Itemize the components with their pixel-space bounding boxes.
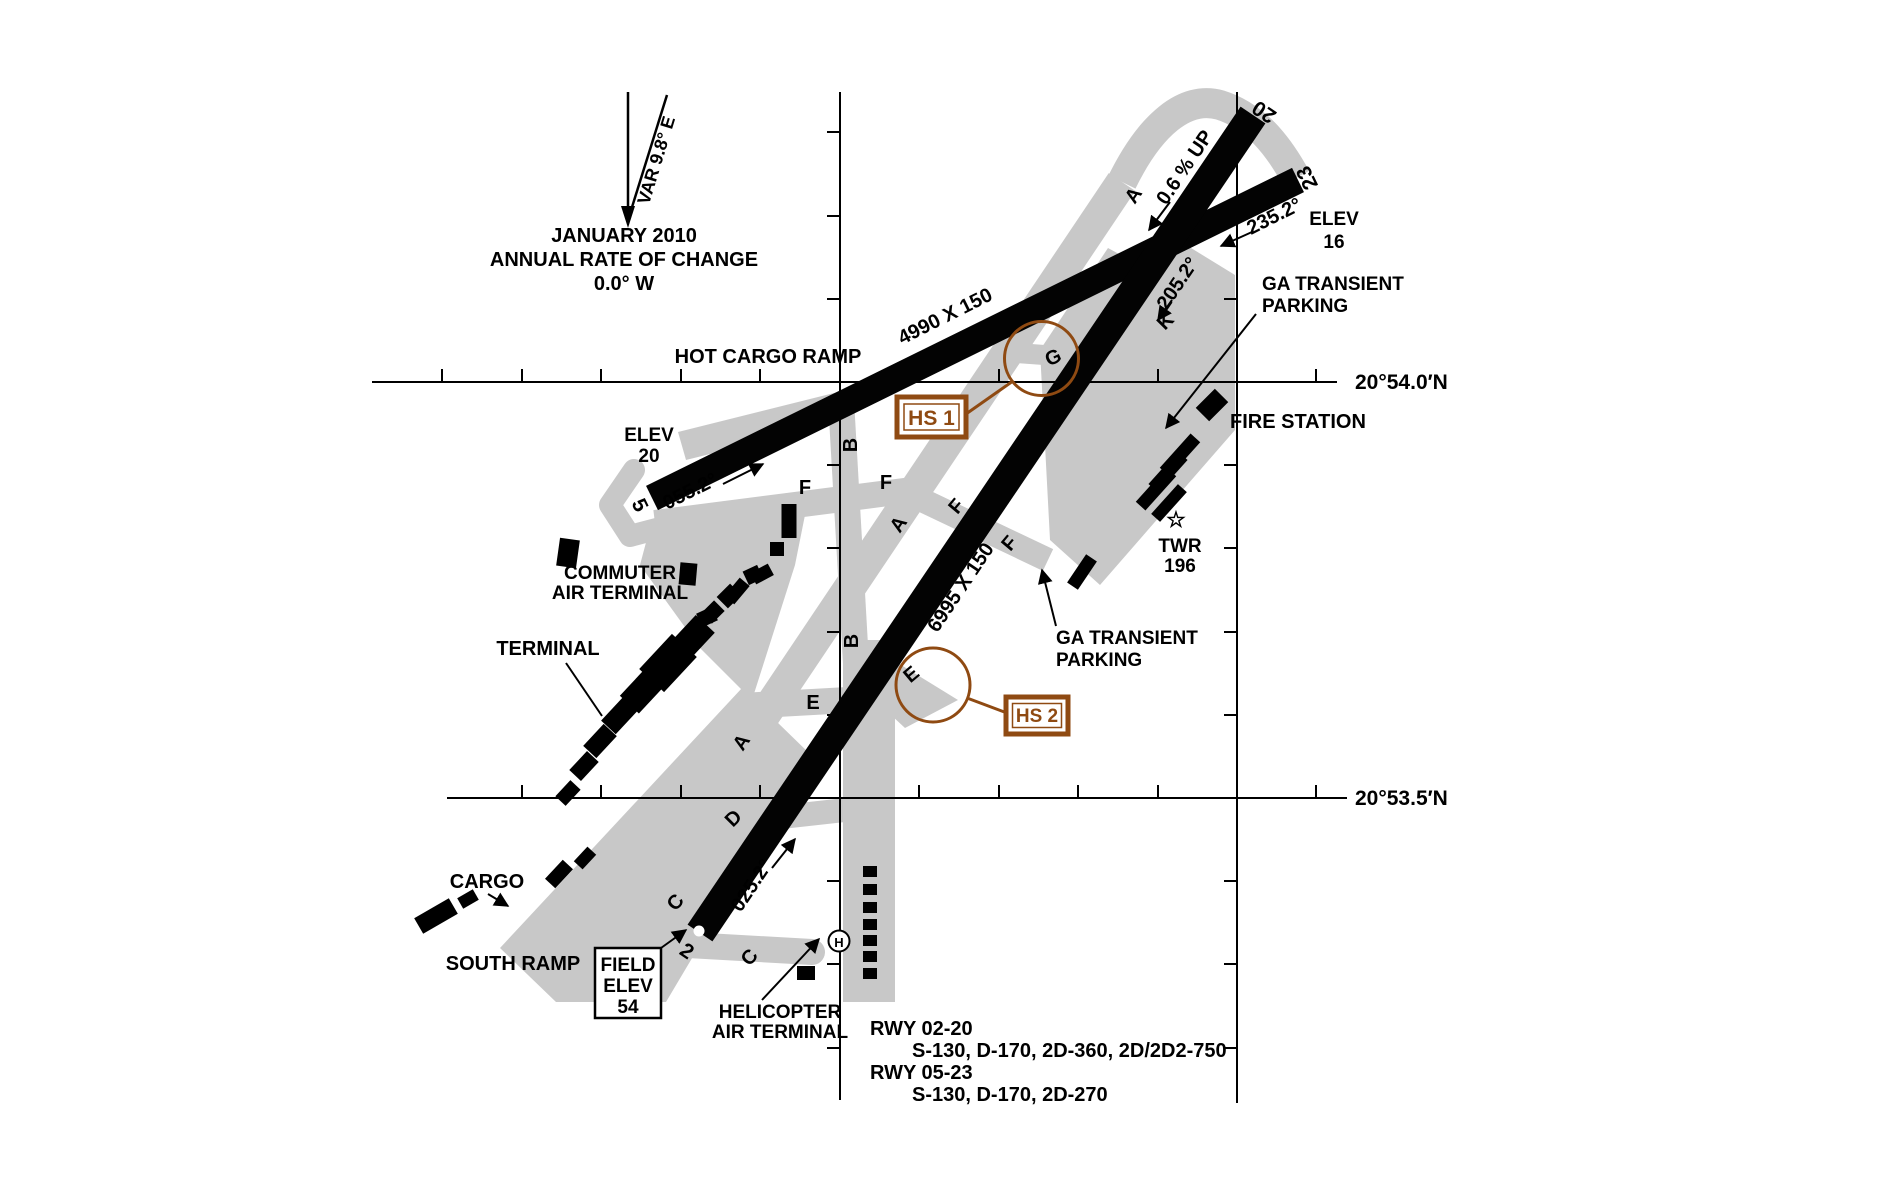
elev5-label: ELEV xyxy=(624,425,674,446)
cargo-pointer-arrow xyxy=(488,894,508,906)
commuter-line2: AIR TERMINAL xyxy=(552,583,689,604)
variation-date: JANUARY 2010 xyxy=(551,225,697,247)
rwy-number-5: 5 xyxy=(627,495,653,516)
taxiway-label-e: E xyxy=(806,692,819,714)
commuter-terminal-label: COMMUTER AIR TERMINAL xyxy=(552,563,689,604)
terminal-pointer-line xyxy=(566,663,602,716)
fire-station-label: FIRE STATION xyxy=(1230,411,1366,433)
taxiway-label-b: B xyxy=(840,438,862,452)
cargo-label: CARGO xyxy=(450,871,524,893)
ga-south-line1: GA TRANSIENT xyxy=(1056,628,1198,649)
runway-data-block: RWY 02-20 S-130, D-170, 2D-360, 2D/2D2-7… xyxy=(870,1018,1227,1106)
displaced-threshold-dot xyxy=(694,926,705,937)
field-elev-line1: FIELD xyxy=(601,955,656,976)
rwy0523-data: S-130, D-170, 2D-270 xyxy=(912,1084,1108,1106)
taxiway-label-b: B xyxy=(841,634,863,648)
latitude-label-north: 20°54.0′N xyxy=(1355,371,1448,394)
tower-symbol: ☆ TWR 196 xyxy=(1158,507,1202,577)
rwy0523-title: RWY 05-23 xyxy=(870,1062,973,1084)
latitude-label-south: 20°53.5′N xyxy=(1355,787,1448,810)
rwy0220-title: RWY 02-20 xyxy=(870,1018,973,1040)
annual-rate-block: JANUARY 2010 ANNUAL RATE OF CHANGE 0.0° … xyxy=(490,225,758,295)
rwy0220-data: S-130, D-170, 2D-360, 2D/2D2-750 xyxy=(912,1040,1227,1062)
diagram-canvas: 20°54.0′N 20°53.5′N xyxy=(0,0,1900,1200)
ga-north-line1: GA TRANSIENT xyxy=(1262,274,1404,295)
ga-south-line2: PARKING xyxy=(1056,650,1142,671)
south-ramp-label: SOUTH RAMP xyxy=(446,953,580,975)
variation-rate: ANNUAL RATE OF CHANGE xyxy=(490,249,758,271)
helicopter-line1: HELICOPTER xyxy=(719,1002,842,1023)
helipad-symbol: H xyxy=(829,931,850,952)
helicopter-line2: AIR TERMINAL xyxy=(712,1022,849,1043)
hs2-label: HS 2 xyxy=(1016,706,1058,727)
variation-label: VAR 9.8° E xyxy=(633,114,679,207)
taxiway-label-f: F xyxy=(799,477,811,499)
ga-north-line2: PARKING xyxy=(1262,296,1348,317)
twr-label: TWR xyxy=(1158,536,1202,557)
helipad-h: H xyxy=(834,935,843,950)
ga-south-pointer-arrow xyxy=(1042,570,1056,626)
commuter-line1: COMMUTER xyxy=(564,563,676,584)
elev5-value: 20 xyxy=(638,446,659,467)
elev23-label: ELEV xyxy=(1309,209,1359,230)
taxiway-label-f: F xyxy=(880,472,892,494)
field-elev-line2: ELEV xyxy=(603,976,653,997)
variation-rate-value: 0.0° W xyxy=(594,273,654,295)
hot-cargo-ramp-label: HOT CARGO RAMP xyxy=(675,346,862,368)
beacon-star-icon: ☆ xyxy=(1166,507,1186,532)
elev23-value: 16 xyxy=(1323,232,1344,253)
hs1-label: HS 1 xyxy=(908,407,955,430)
twr-elev: 196 xyxy=(1164,556,1196,577)
field-elev-value: 54 xyxy=(617,997,639,1018)
terminal-label: TERMINAL xyxy=(496,638,599,660)
ga-transient-parking-south: GA TRANSIENT PARKING xyxy=(1042,570,1198,671)
airport-diagram: 20°54.0′N 20°53.5′N xyxy=(0,0,1900,1200)
elev-rwy23: ELEV 16 xyxy=(1309,209,1359,253)
